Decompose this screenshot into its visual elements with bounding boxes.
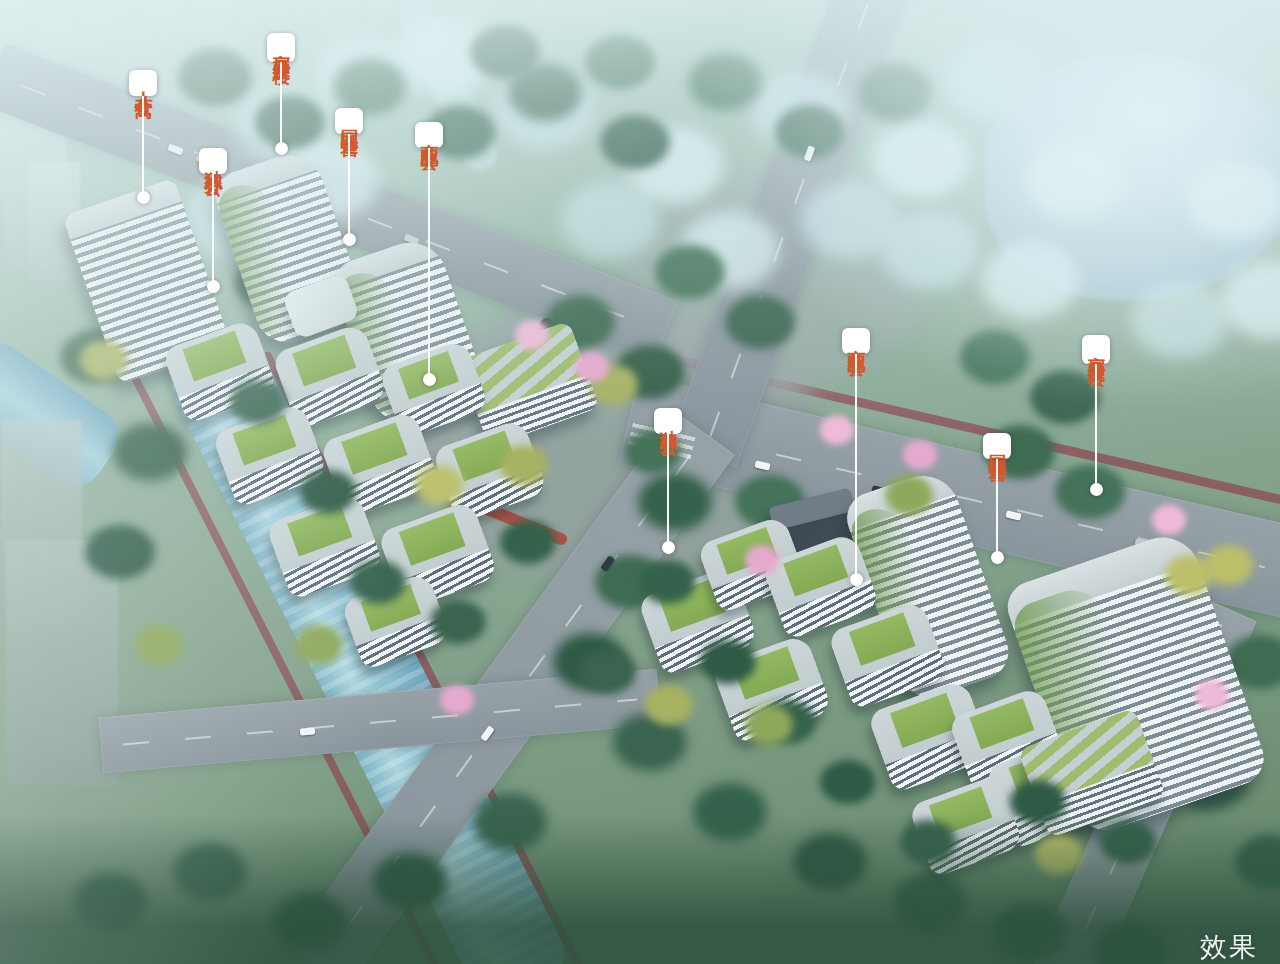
callout-park-operations-east: 园区运营 [982, 433, 1012, 564]
leader-line [667, 434, 669, 542]
leader-line [142, 96, 144, 192]
leader-dot [343, 233, 356, 246]
leader-dot [275, 142, 288, 155]
callout-talent-apartment-west: 人才公寓 [128, 70, 158, 204]
car [300, 727, 316, 735]
aerial-rendering-scene: 人才公寓 独栋办公 高层研发楼 园区运营 商业配套 独栋办公 商业配套 园区运营 [0, 0, 1280, 964]
label-talent-apartment-west: 人才公寓 [129, 70, 158, 96]
leader-dot [423, 373, 436, 386]
callout-commercial-east: 商业配套 [841, 328, 871, 586]
callout-park-operations-west: 园区运营 [334, 108, 364, 246]
leader-dot [662, 541, 675, 554]
label-highrise-rd-west: 高层研发楼 [267, 33, 296, 62]
callout-highrise-rd-west: 高层研发楼 [266, 33, 296, 155]
label-commercial-east: 商业配套 [842, 328, 871, 354]
callout-highrise-rd-east: 高层研发楼 [1081, 335, 1111, 496]
leader-dot [137, 191, 150, 204]
label-park-operations-east: 园区运营 [983, 433, 1012, 459]
callout-detached-office-west: 独栋办公 [198, 148, 228, 293]
leader-dot [207, 280, 220, 293]
label-detached-office-east: 独栋办公 [654, 408, 683, 434]
leader-line [212, 174, 214, 281]
leader-line [1095, 364, 1097, 484]
leader-line [855, 354, 857, 574]
tree-cluster-blossom [0, 0, 34, 30]
forest-belt-south [0, 814, 1280, 964]
canal [391, 0, 502, 176]
leader-dot [991, 551, 1004, 564]
leader-line [348, 134, 350, 234]
leader-dot [850, 573, 863, 586]
leader-line [280, 62, 282, 143]
callout-commercial-west: 商业配套 [414, 122, 444, 386]
leader-line [428, 148, 430, 374]
label-highrise-rd-east: 高层研发楼 [1082, 335, 1111, 364]
label-park-operations-west: 园区运营 [335, 108, 364, 134]
lake [985, 55, 1280, 300]
label-commercial-west: 商业配套 [415, 122, 444, 148]
label-detached-office-west: 独栋办公 [199, 148, 228, 174]
leader-line [996, 459, 998, 552]
watermark: 效果图 [1200, 929, 1280, 964]
leader-dot [1090, 483, 1103, 496]
callout-detached-office-east: 独栋办公 [653, 408, 683, 554]
